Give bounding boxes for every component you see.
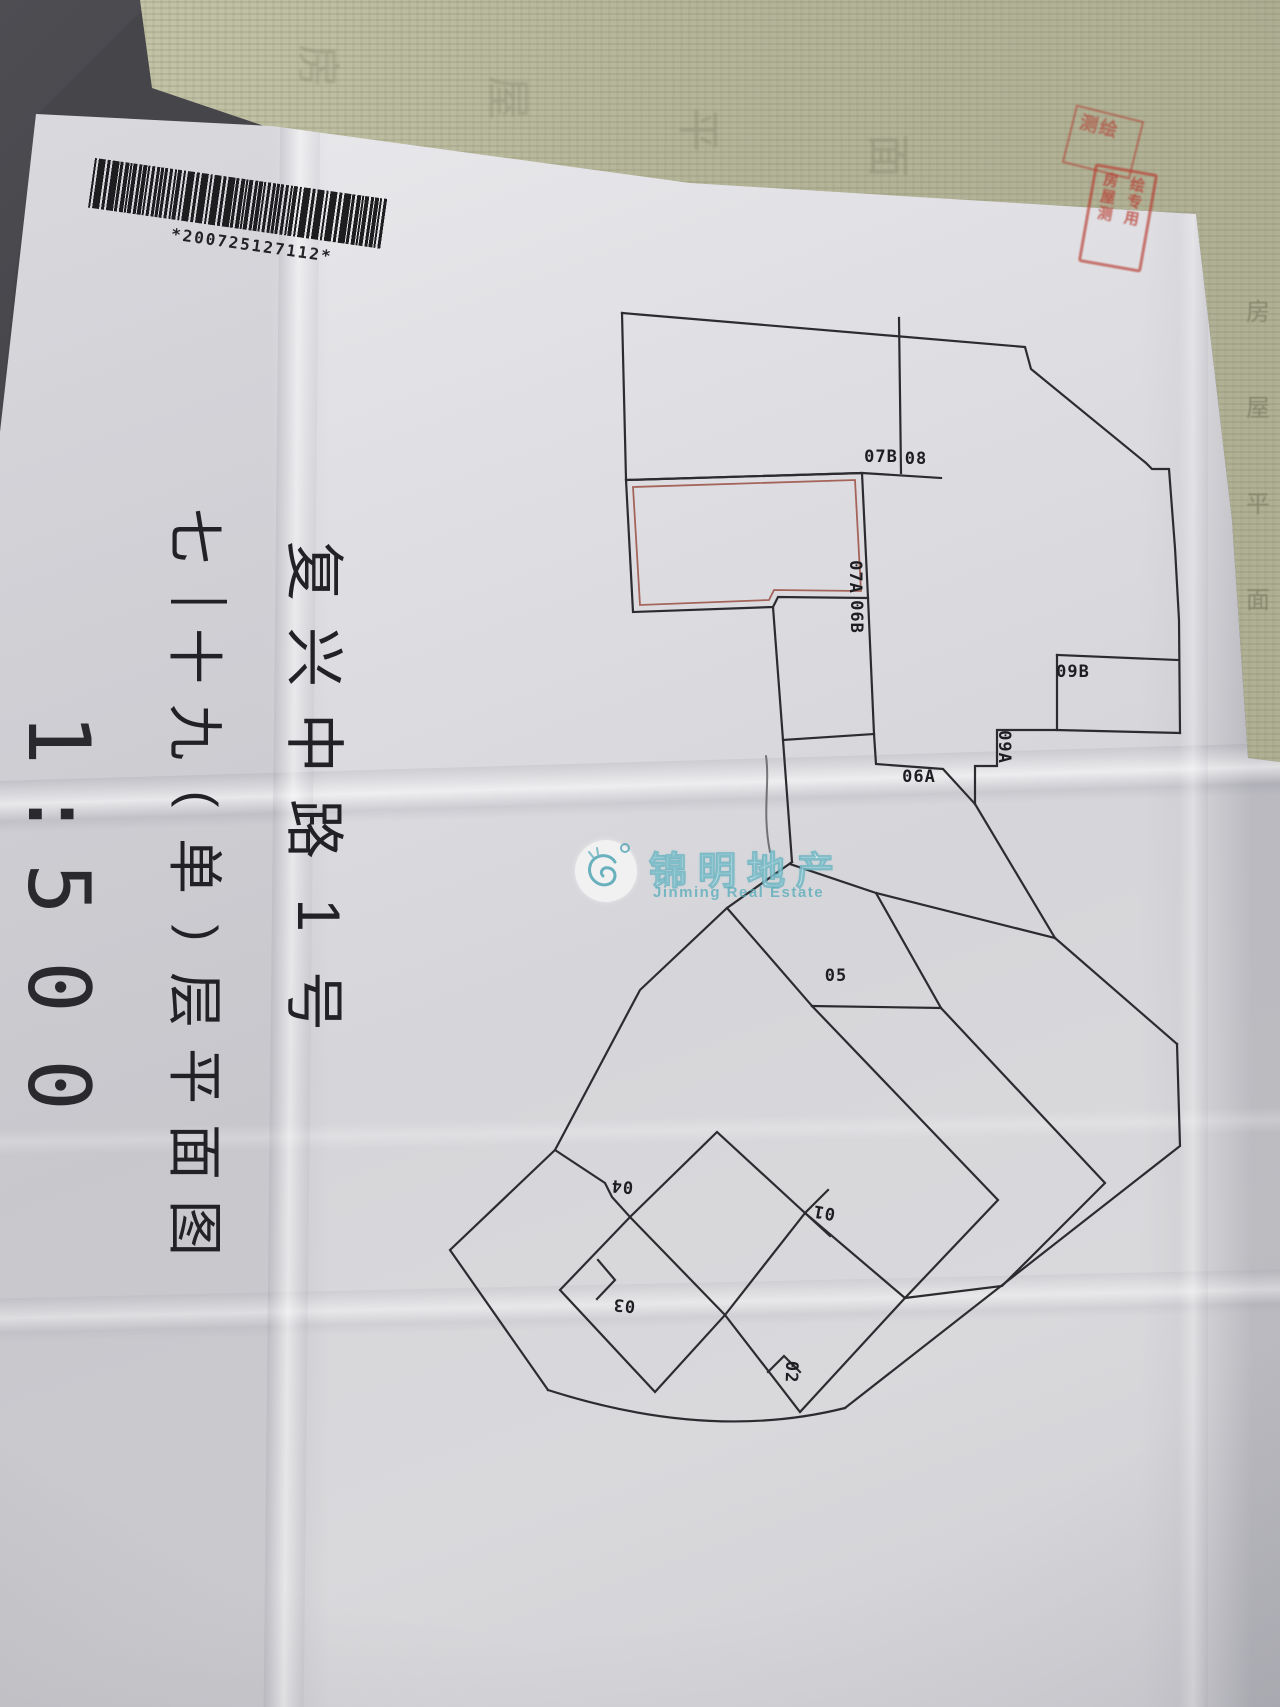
red-seal-glyph-column: 绘专用 — [1116, 176, 1146, 265]
scale-char: 5 — [9, 843, 107, 935]
street-title-char: 兴 — [276, 624, 362, 690]
unit-07A-outline — [626, 473, 868, 612]
jinming-logo-icon — [575, 840, 637, 902]
scale-text: 1 : 5 0 0 — [12, 690, 104, 1134]
floor-title-char: 七 — [161, 505, 237, 567]
unit-label-07A: 07A — [845, 560, 865, 594]
fold-crease-horizontal — [0, 1269, 1280, 1343]
unit-label-09B: 09B — [1056, 662, 1090, 682]
unit-label-02: 02 — [781, 1360, 802, 1383]
floor-title-char: 平 — [161, 1045, 237, 1107]
watermark-english-text: Jinming Real Estate — [653, 884, 824, 901]
unit-label-04: 04 — [610, 1175, 634, 1197]
floor-title-char: 九 — [161, 701, 237, 763]
unit-label-05: 05 — [825, 966, 847, 986]
street-title-char: 路 — [276, 796, 362, 862]
floor-title-char: 面 — [161, 1121, 237, 1183]
underlay-edge-char: 面 — [1246, 580, 1270, 615]
underlay-pattern-char: 平 — [670, 108, 734, 152]
underlay-edge-char: 平 — [1246, 484, 1270, 519]
underlay-edge-char: 房 — [1246, 292, 1270, 327]
street-title-char: 复 — [276, 538, 362, 604]
underlay-pattern-char: 屋 — [480, 76, 544, 120]
unit-label-08: 08 — [905, 449, 927, 469]
floor-title-char: 十 — [161, 625, 237, 687]
underlay-pattern-char: 房 — [290, 44, 354, 88]
floor-title-paren: ) — [170, 902, 228, 964]
floor-range-title: 七 — 十 九 ( 单 ) 层 平 面 图 — [168, 498, 230, 1266]
unit-label-06B: 06B — [846, 600, 866, 634]
photo-of-floorplan-document: 房 屋 平 面 房 屋 平 面 *200725127112* 复 兴 中 路 1… — [0, 0, 1280, 1707]
floor-title-char: 单 — [161, 835, 237, 897]
underlay-pattern-char: 面 — [860, 134, 924, 178]
street-title-char: 中 — [276, 710, 362, 776]
street-title: 复 兴 中 路 1 号 — [286, 528, 352, 1044]
unit-label-03: 03 — [612, 1294, 636, 1316]
red-seal-glyph-column: 房屋测 — [1090, 171, 1120, 260]
scale-char: 0 — [9, 1039, 107, 1131]
floor-title-char: 层 — [161, 969, 237, 1031]
floor-title-paren: ( — [170, 768, 228, 830]
underlay-edge-char: 屋 — [1246, 388, 1270, 423]
floor-title-dash: — — [168, 574, 230, 618]
street-title-char: 1 — [276, 882, 362, 948]
fold-crease-vertical — [1178, 210, 1208, 1707]
unit-label-01: 01 — [811, 1200, 837, 1224]
unit-label-09A: 09A — [994, 730, 1014, 764]
street-title-char: 号 — [276, 968, 362, 1034]
unit-label-06A: 06A — [902, 767, 936, 787]
unit-label-07B: 07B — [864, 447, 898, 467]
barcode: *200725127112* — [82, 158, 392, 295]
watermark: 锦明地产 Jinming Real Estate — [575, 838, 925, 912]
floor-title-char: 图 — [161, 1197, 237, 1259]
scale-char: 0 — [9, 941, 107, 1033]
unit-07A-red-highlight — [633, 480, 861, 605]
